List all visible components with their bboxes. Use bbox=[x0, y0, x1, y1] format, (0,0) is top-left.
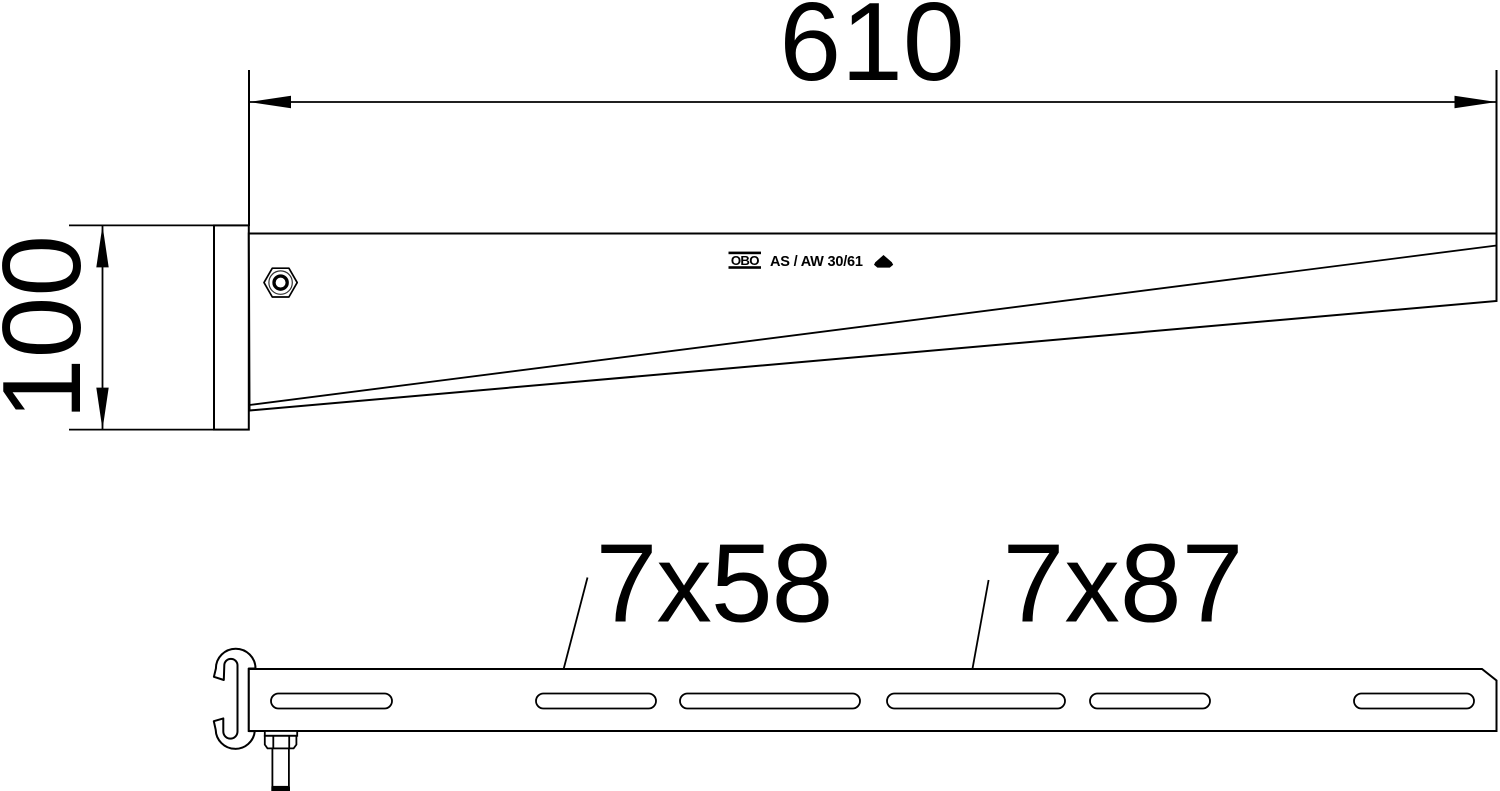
svg-text:7x58: 7x58 bbox=[596, 522, 833, 646]
svg-text:OBO: OBO bbox=[731, 253, 759, 268]
svg-text:7x87: 7x87 bbox=[1003, 522, 1244, 646]
svg-text:AS / AW 30/61: AS / AW 30/61 bbox=[770, 254, 863, 270]
svg-text:610: 610 bbox=[779, 0, 964, 104]
svg-text:100: 100 bbox=[0, 235, 104, 420]
